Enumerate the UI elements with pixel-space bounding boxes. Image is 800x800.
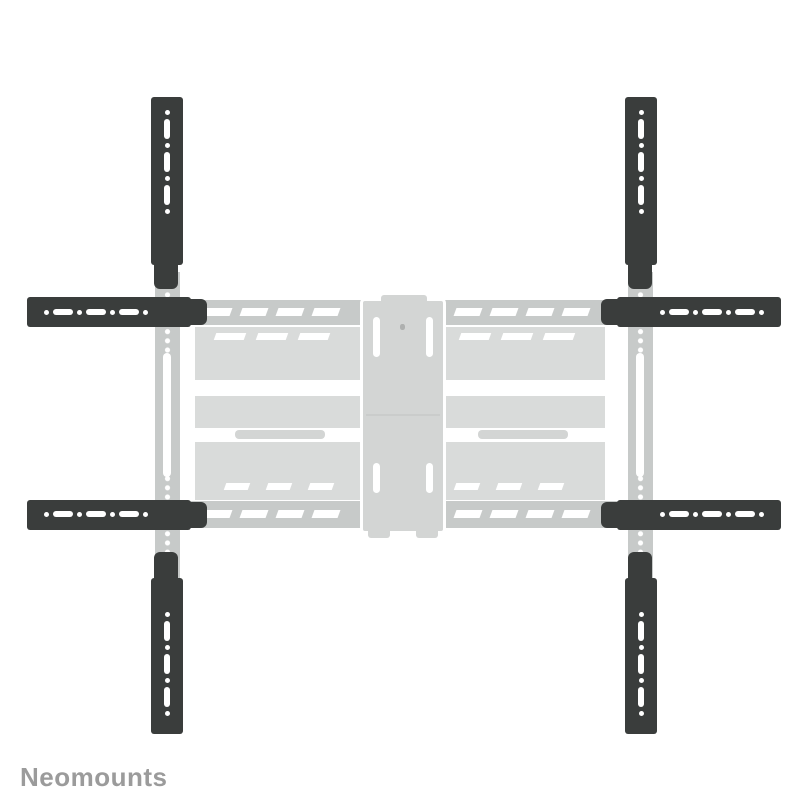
extension-arm-top-right-tip: [628, 263, 652, 289]
vesa-hole: [639, 143, 644, 148]
vesa-hole: [164, 654, 170, 674]
vesa-hole: [639, 110, 644, 115]
mount-hook: [235, 430, 325, 439]
vesa-hole: [44, 310, 49, 315]
vesa-hole: [143, 512, 148, 517]
vesa-hole: [735, 309, 755, 315]
vesa-hole: [165, 678, 170, 683]
vesa-hole: [86, 511, 106, 517]
rail-slot: [276, 510, 305, 518]
extension-arm-right-lower-holes: [660, 504, 764, 524]
vesa-hole: [119, 309, 139, 315]
vesa-hole: [639, 678, 644, 683]
rail-slot: [204, 510, 233, 518]
rail-slot: [636, 353, 644, 477]
vesa-hole: [639, 612, 644, 617]
rail-slot: [496, 483, 523, 490]
vesa-hole: [164, 152, 170, 172]
vesa-hole: [702, 511, 722, 517]
rail-slot: [214, 333, 247, 340]
plate-slot: [373, 463, 380, 493]
vesa-hole: [660, 310, 665, 315]
vesa-hole: [165, 143, 170, 148]
vesa-hole: [143, 310, 148, 315]
vesa-hole: [669, 511, 689, 517]
extension-arm-right-upper-holes: [660, 302, 764, 322]
rail-slot: [312, 510, 341, 518]
vesa-hole: [735, 511, 755, 517]
vesa-hole: [164, 185, 170, 205]
vesa-hole: [693, 512, 698, 517]
extension-arm-left-lower-tip: [189, 502, 207, 528]
vesa-hole: [165, 612, 170, 617]
rail-slot: [454, 510, 483, 518]
vesa-hole: [164, 119, 170, 139]
rail-slot: [562, 308, 591, 316]
brand-logo: Neomounts: [20, 762, 168, 793]
vesa-hole: [119, 511, 139, 517]
vesa-hole: [660, 512, 665, 517]
rail-slot: [312, 308, 341, 316]
extension-arm-left-lower-holes: [44, 504, 148, 524]
vesa-hole: [639, 209, 644, 214]
vesa-hole: [639, 711, 644, 716]
vesa-hole: [86, 309, 106, 315]
extension-arm-top-right-holes: [631, 110, 651, 214]
vesa-hole: [638, 687, 644, 707]
extension-arm-top-left-tip: [154, 263, 178, 289]
plate-slot: [373, 317, 380, 357]
extension-arm-bottom-left-tip: [154, 552, 178, 579]
rail-slot: [276, 308, 305, 316]
vesa-hole: [77, 512, 82, 517]
vesa-hole: [726, 310, 731, 315]
vesa-hole: [165, 209, 170, 214]
plate-bottom-tab: [416, 531, 438, 538]
rail-slot: [256, 333, 289, 340]
extension-arm-bottom-right-tip: [628, 552, 652, 579]
vesa-hole: [110, 310, 115, 315]
rail-slot: [538, 483, 565, 490]
vesa-hole: [693, 310, 698, 315]
rail-slot: [543, 333, 576, 340]
vesa-hole: [110, 512, 115, 517]
rail-slot: [308, 483, 335, 490]
wall-plate-top-tab: [381, 295, 427, 303]
vesa-hole: [53, 511, 73, 517]
vesa-hole: [44, 512, 49, 517]
rail-slot: [490, 510, 519, 518]
vesa-hole: [669, 309, 689, 315]
plate-slot: [426, 317, 433, 357]
rail-slot: [204, 308, 233, 316]
vesa-hole: [638, 119, 644, 139]
vesa-hole: [53, 309, 73, 315]
extension-arm-left-upper-tip: [189, 299, 207, 325]
vesa-hole: [165, 176, 170, 181]
product-render: Neomounts: [0, 0, 800, 800]
vesa-hole: [638, 654, 644, 674]
plate-slot: [426, 463, 433, 493]
extension-arm-bottom-right-holes: [631, 612, 651, 716]
vesa-hole: [759, 310, 764, 315]
vesa-hole: [639, 176, 644, 181]
plate-bottom-tab: [368, 531, 390, 538]
plate-seam: [366, 414, 440, 416]
rail-slot: [240, 308, 269, 316]
vesa-hole: [164, 621, 170, 641]
rail-slot: [163, 353, 171, 477]
mount-hook: [478, 430, 568, 439]
vesa-hole: [638, 621, 644, 641]
rail-slot: [501, 333, 534, 340]
rail-slot: [459, 333, 492, 340]
rail-slot: [298, 333, 331, 340]
rail-slot: [562, 510, 591, 518]
extension-arm-left-upper-holes: [44, 302, 148, 322]
rail-slot: [490, 308, 519, 316]
vesa-hole: [638, 185, 644, 205]
rail-slot: [266, 483, 293, 490]
rail-slot: [526, 510, 555, 518]
vesa-hole: [164, 687, 170, 707]
vesa-hole: [639, 645, 644, 650]
vesa-hole: [165, 110, 170, 115]
vesa-hole: [638, 152, 644, 172]
vesa-hole: [759, 512, 764, 517]
vesa-hole: [702, 309, 722, 315]
plate-keyhole: [400, 324, 405, 330]
rail-slot: [526, 308, 555, 316]
extension-arm-top-left-holes: [157, 110, 177, 214]
rail-slot: [454, 483, 481, 490]
extension-arm-bottom-left-holes: [157, 612, 177, 716]
vesa-hole: [726, 512, 731, 517]
rail-slot: [240, 510, 269, 518]
rail-slot: [454, 308, 483, 316]
vesa-hole: [165, 711, 170, 716]
vesa-hole: [165, 645, 170, 650]
rail-slot: [224, 483, 251, 490]
vesa-hole: [77, 310, 82, 315]
